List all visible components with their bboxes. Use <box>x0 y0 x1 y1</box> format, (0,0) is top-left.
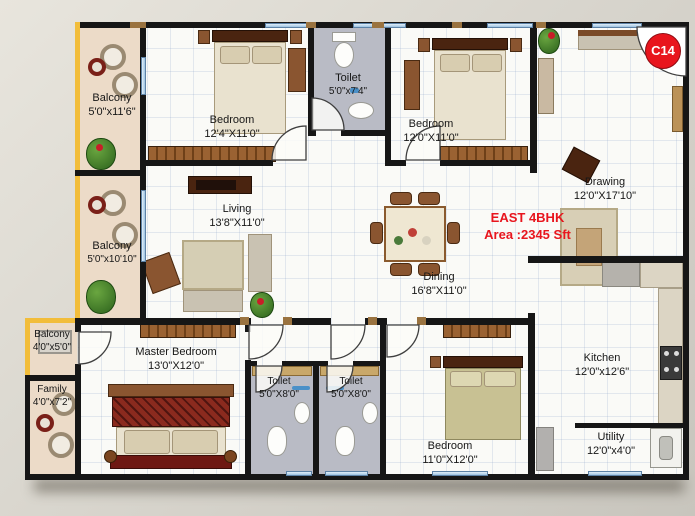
room-dims: 5'0"x10'10" <box>78 254 146 267</box>
room-dims: 12'0"x12'6" <box>537 366 667 380</box>
room-name: Utility <box>546 431 676 445</box>
room-label-family: Family 4'0"x7'2" <box>27 384 77 409</box>
unit-badge: C14 <box>645 33 681 69</box>
room-dims: 13'0"X12'0" <box>101 360 251 374</box>
floor-plan-canvas: Balcony 5'0"x11'6" Bedroom 12'4"X11'0" T… <box>0 0 695 516</box>
room-name: Master Bedroom <box>101 346 251 360</box>
room-label-bedroom-top-right: Bedroom 12'0"X11'0" <box>385 118 477 146</box>
room-name: Toilet <box>248 376 310 389</box>
room-label-kitchen: Kitchen 12'0"x12'6" <box>537 352 667 380</box>
room-name: Bedroom <box>386 440 514 454</box>
room-name: Balcony <box>27 329 77 342</box>
room-name: Bedroom <box>385 118 477 132</box>
room-label-drawing: Drawing 12'0"X17'10" <box>540 176 670 204</box>
room-name: Kitchen <box>537 352 667 366</box>
room-name: Drawing <box>540 176 670 190</box>
room-name: Dining <box>374 271 504 285</box>
door-arc <box>249 325 283 359</box>
room-label-bedroom-bottom: Bedroom 11'0"X12'0" <box>386 440 514 468</box>
room-name: Toilet <box>320 376 382 389</box>
room-dims: 12'0"X17'10" <box>540 190 670 204</box>
room-label-toilet-bottom-right: Toilet 5'0"X8'0" <box>320 376 382 401</box>
room-label-toilet-top: Toilet 5'0"x7'4" <box>316 72 380 98</box>
room-label-master-bedroom: Master Bedroom 13'0"X12'0" <box>101 346 251 374</box>
room-label-balcony-bottom: Balcony 4'0"x5'0" <box>27 329 77 354</box>
room-label-balcony-mid: Balcony 5'0"x10'10" <box>78 240 146 266</box>
room-label-balcony-top: Balcony 5'0"x11'6" <box>80 92 144 120</box>
room-dims: 12'0"x4'0" <box>546 445 676 459</box>
unit-info: EAST 4BHK Area :2345 Sft <box>455 210 600 244</box>
room-dims: 5'0"X8'0" <box>248 389 310 402</box>
room-name: Balcony <box>78 240 146 254</box>
room-dims: 4'0"x7'2" <box>27 397 77 410</box>
room-label-toilet-bottom-left: Toilet 5'0"X8'0" <box>248 376 310 401</box>
room-label-dining: Dining 16'8"X11'0" <box>374 271 504 299</box>
room-name: Toilet <box>316 72 380 86</box>
room-dims: 11'0"X12'0" <box>386 454 514 468</box>
room-dims: 5'0"x11'6" <box>80 106 144 120</box>
room-dims: 5'0"x7'4" <box>316 86 380 99</box>
door-arc <box>331 325 365 359</box>
room-label-living: Living 13'8"X11'0" <box>167 203 307 231</box>
room-dims: 12'0"X11'0" <box>385 132 477 146</box>
room-name: Family <box>27 384 77 397</box>
room-dims: 5'0"X8'0" <box>320 389 382 402</box>
room-dims: 12'4"X11'0" <box>162 128 302 142</box>
room-dims: 16'8"X11'0" <box>374 285 504 299</box>
unit-type: EAST 4BHK <box>455 210 600 227</box>
room-name: Bedroom <box>162 114 302 128</box>
unit-area: Area :2345 Sft <box>455 227 600 244</box>
door-arc <box>312 98 344 130</box>
room-dims: 13'8"X11'0" <box>167 217 307 231</box>
room-name: Balcony <box>80 92 144 106</box>
room-label-utility: Utility 12'0"x4'0" <box>546 431 676 459</box>
room-dims: 4'0"x5'0" <box>27 342 77 355</box>
room-label-bedroom-top-left: Bedroom 12'4"X11'0" <box>162 114 302 142</box>
room-name: Living <box>167 203 307 217</box>
door-arc <box>387 325 419 357</box>
